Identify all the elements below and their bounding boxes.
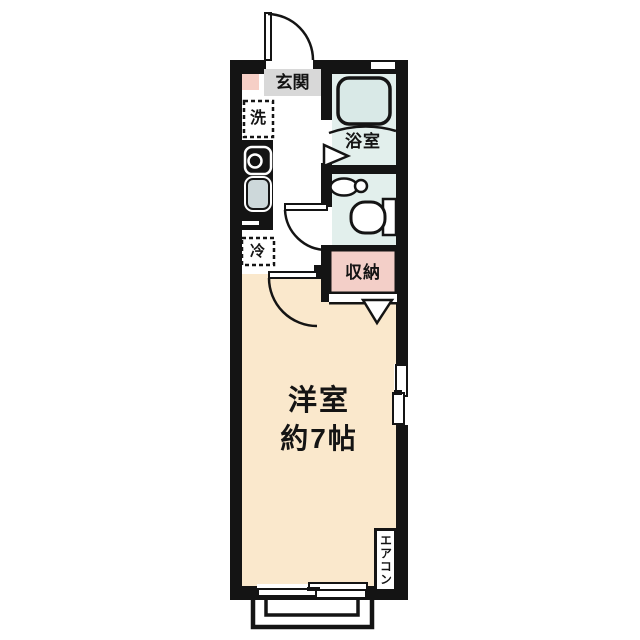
toilet-door-opening [321,207,332,246]
counter-edge-mark [242,221,259,225]
room-door-panel [269,272,317,278]
wall-bath-toilet [321,165,408,174]
bathtub [338,78,390,124]
wall-left [230,60,242,600]
refrigerator-label: 冷 [241,238,274,265]
storage-label: 収納 [331,252,395,292]
floor-plan: 玄関 洗 浴室 冷 収納 洋室 約7帖 エアコン [0,0,640,640]
entrance-door-arc [268,14,313,60]
floor-plan-drawing [0,0,640,640]
toilet-door-panel [285,204,327,210]
entrance-label: 玄関 [264,69,321,96]
bathroom-window [370,61,396,70]
wall-right [396,60,408,600]
washing-machine-label: 洗 [243,101,273,137]
balcony-railing-inner [266,600,358,615]
entrance-door-panel [265,13,271,60]
main-room-name: 洋室 [288,387,350,416]
basin-faucet [355,180,367,192]
air-conditioner-label: エアコン [374,528,397,592]
bathroom-label: 浴室 [330,128,396,154]
balcony-window-latch [307,587,320,591]
main-room-label: 洋室 約7帖 [242,380,396,460]
main-room-size: 約7帖 [280,425,358,453]
kitchen-sink [247,179,269,209]
wall-divider-upper [321,74,332,120]
wash-basin [331,179,358,196]
toilet-bowl [351,202,385,233]
